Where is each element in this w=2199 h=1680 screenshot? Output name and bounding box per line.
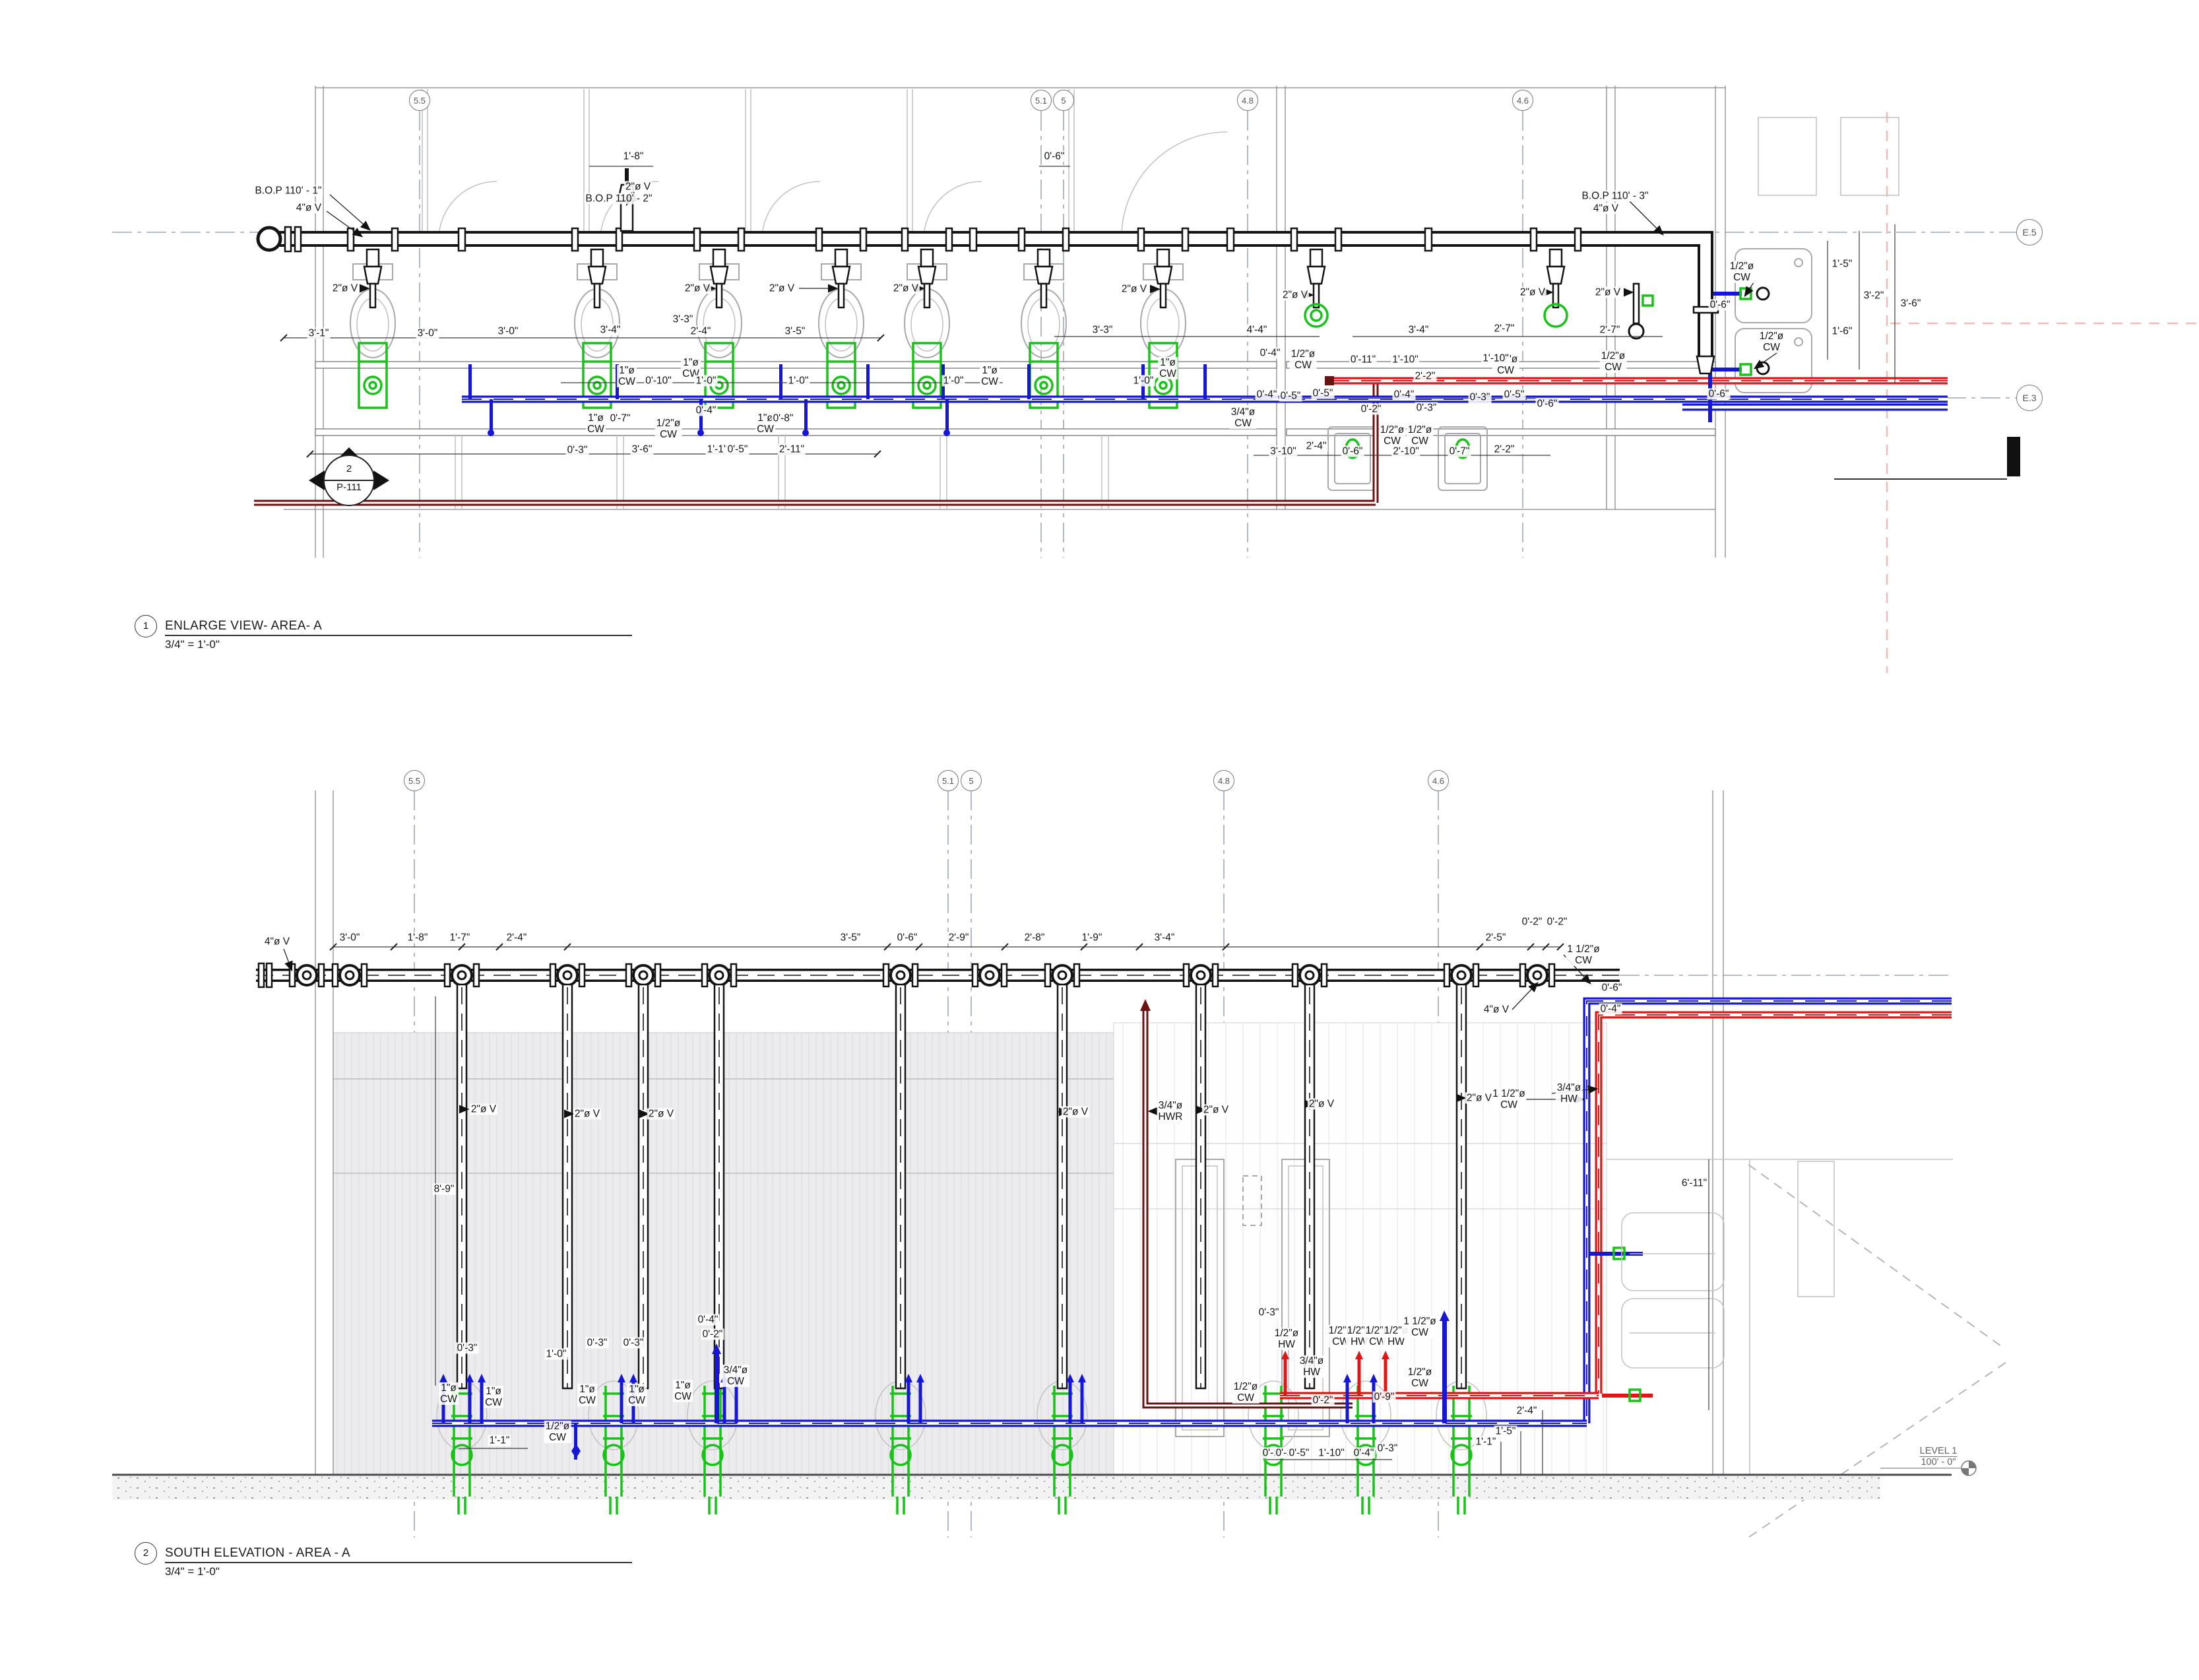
annotation-label: 1'-0" [942, 375, 965, 386]
annotation-label: 1 1/2"ø CW [1566, 944, 1601, 966]
annotation-label: 3'-2" [1863, 290, 1886, 301]
view-title-2: 2 SOUTH ELEVATION - AREA - A 3/4" = 1'-0… [165, 1546, 632, 1578]
view-number-2: 2 [135, 1542, 157, 1565]
annotation-label: 1 1/2"ø CW [1402, 1316, 1437, 1338]
grid-bubble: 4.8 [1237, 90, 1258, 111]
annotation-label: 0'-6" [1709, 299, 1732, 310]
annotation-label: 0'-6" [1043, 150, 1066, 162]
annotation-label: 2"ø V [573, 1108, 601, 1119]
annotation-label: 2"ø V [1281, 289, 1309, 300]
annotation-label: 0'-5" [1312, 387, 1335, 399]
grid-bubble: 5.5 [404, 770, 425, 791]
annotation-label: 0'-3" [1258, 1307, 1281, 1318]
annotation-label: 1'-1" [488, 1435, 511, 1446]
annotation-label: 0'-6" [1341, 445, 1364, 457]
annotation-label: 0'-5" [726, 443, 749, 455]
annotation-label: 1'-10" [1481, 352, 1510, 364]
annotation-label: 2"ø V [892, 282, 920, 294]
annotation-label: 3/4"ø HWR [1157, 1100, 1184, 1122]
annotation-label: 0'-5" [1288, 1447, 1311, 1458]
annotation-label: 2"ø V [684, 282, 711, 294]
annotation-label: 2"ø V [1519, 286, 1546, 298]
annotation-label: 1/2"ø CW [1407, 1367, 1434, 1389]
grid-bubble: 4.6 [1428, 770, 1449, 791]
annotation-label: 8'-9" [433, 1183, 456, 1194]
annotation-label: 1'-1" [1475, 1436, 1498, 1447]
annotation-label: 0'-4" [697, 1314, 720, 1325]
grid-bubble: 4.6 [1512, 90, 1533, 111]
annotation-label: 2'-5" [1484, 932, 1508, 943]
annotation-label: 1'-8" [622, 150, 645, 162]
grid-bubble: 4.8 [1213, 770, 1234, 791]
annotation-label: 1/2"ø CW [1729, 261, 1756, 283]
grid-bubble: E.3 [2016, 385, 2043, 411]
annotation-label: 0'-5" [1503, 389, 1526, 400]
section-tag: 2 P-111 [324, 455, 374, 505]
annotation-label: 2'-11" [778, 443, 806, 455]
annotation-label: 4"ø V [1482, 1004, 1510, 1015]
annotation-label: 1'-0" [1132, 375, 1155, 386]
annotation-label: 0'-3" [586, 1337, 609, 1348]
annotation-label: 0'-4" [695, 404, 718, 416]
annotation-label: 2"ø V [1062, 1106, 1089, 1117]
view-scale-1: 3/4" = 1'-0" [165, 638, 632, 651]
annotation-label: 3/4"ø HW [1556, 1082, 1583, 1105]
annotation-label: B.O.P 110' - 1" [254, 185, 323, 196]
annotation-label: 2"ø V [1594, 286, 1622, 298]
annotation-label: 3/4"ø CW [1230, 406, 1257, 429]
annotation-label: 4"ø V [263, 936, 291, 947]
annotation-label: 3'-5" [839, 932, 862, 943]
annotation-label: 2'-4" [505, 932, 528, 943]
level-datum-icon [1961, 1461, 1976, 1475]
annotation-label: 1/2"ø CW [1290, 348, 1317, 371]
section-sheet: P-111 [324, 482, 374, 493]
annotation-label: 1/2"ø CW [1407, 424, 1434, 447]
annotation-label: 0'-3" [622, 1337, 645, 1348]
annotation-label: 1/2"ø CW [1232, 1381, 1259, 1404]
annotation-label: 0'-2" [701, 1328, 724, 1340]
annotation-label: 1"ø CW [617, 365, 637, 387]
level-tag: LEVEL 1 100' - 0" [1920, 1446, 1958, 1468]
annotation-label: 1'-10" [1317, 1447, 1345, 1458]
annotation-label: 0'-8" [772, 412, 795, 424]
view-title-1: 1 ENLARGE VIEW- AREA- A 3/4" = 1'-0" [165, 619, 632, 651]
annotation-label: 2'-2" [1493, 443, 1516, 455]
annotation-label: 0'-9" [1373, 1391, 1396, 1402]
annotation-label: 3'-0" [416, 327, 439, 339]
annotation-label: 2'-10" [1391, 445, 1420, 457]
annotation-label: 0'-6" [1536, 398, 1559, 409]
annotation-label: 3'-3" [1091, 324, 1114, 335]
annotation-label: 1'-8" [406, 932, 430, 943]
annotation-label: 0'-3" [566, 444, 589, 455]
annotation-label: 2"ø V [647, 1108, 675, 1119]
annotation-label: 1'-5" [1494, 1425, 1517, 1437]
annotation-label: 3'-5" [784, 325, 807, 337]
annotation-label: 1'-0" [787, 375, 810, 386]
annotation-label: 1'-0" [545, 1348, 568, 1359]
drawing-linework [0, 0, 2199, 1680]
annotation-label: 0'-3" [1469, 391, 1492, 403]
annotation-label: 0'-7" [609, 412, 632, 424]
annotation-label: 0'-3" [1415, 402, 1438, 413]
annotation-label: 2'-7" [1493, 323, 1516, 334]
annotation-label: 2"ø V [1202, 1104, 1230, 1115]
annotation-label: 1"ø CW [586, 412, 606, 435]
annotation-label: 2'-8" [1023, 932, 1046, 943]
annotation-label: 1'-0" [695, 375, 718, 386]
annotation-label: 3'-0" [497, 325, 520, 337]
grid-bubble: 5.5 [409, 90, 430, 111]
annotation-label: 0'-4" [1353, 1447, 1376, 1458]
annotation-label: 0'-11" [1349, 354, 1377, 365]
annotation-label: 0'-2" [1360, 403, 1383, 414]
annotation-label: 0'-6" [1601, 982, 1624, 993]
annotation-label: 2'-2" [1414, 370, 1437, 381]
annotation-label: 0'-4" [1256, 389, 1279, 400]
annotation-label: 1/2"ø CW [655, 418, 682, 440]
elevation-view [112, 791, 2006, 1537]
view-title-text-2: SOUTH ELEVATION - AREA - A [165, 1546, 632, 1561]
title-underline-1 [165, 635, 632, 636]
annotation-label: 0'-2" [1312, 1394, 1335, 1405]
annotation-label: 6'-11" [1680, 1177, 1708, 1188]
annotation-label: 0'-4" [1393, 389, 1416, 400]
annotation-label: 3/4"ø CW [722, 1365, 749, 1387]
annotation-label: 2"ø V [1120, 283, 1148, 294]
annotation-label: 1 1/2"ø CW [1491, 1088, 1526, 1111]
annotation-label: 1"ø CW [980, 365, 1000, 387]
annotation-label: 4'-4" [1246, 324, 1269, 335]
annotation-label: 2"ø V [1308, 1098, 1335, 1109]
annotation-label: 3'-3" [672, 313, 695, 325]
view-title-text-1: ENLARGE VIEW- AREA- A [165, 619, 632, 633]
annotation-label: 1/2"ø HW [1273, 1328, 1300, 1350]
annotation-label: 4"ø V [1592, 203, 1620, 214]
annotation-label: 2"ø V [624, 181, 652, 192]
annotation-label: 2'-4" [689, 325, 713, 337]
view-scale-2: 3/4" = 1'-0" [165, 1565, 632, 1578]
annotation-label: 0'-6" [1707, 388, 1731, 399]
annotation-label: 2"ø V [768, 282, 796, 294]
annotation-label: B.O.P 110' - 3" [1581, 190, 1650, 201]
annotation-label: 1"ø CW [627, 1384, 647, 1406]
annotation-label: 0'-7" [1448, 445, 1471, 457]
annotation-label: 2"ø V [331, 282, 359, 294]
annotation-label: 0'-4" [1259, 347, 1282, 358]
annotation-label: 0'-2" [1546, 916, 1569, 927]
annotation-label: 0'-5" [1279, 390, 1302, 401]
annotation-label: 0'-10" [644, 375, 672, 386]
annotation-label: 1/2"ø CW [1600, 350, 1627, 373]
annotation-label: 3'-4" [1153, 932, 1176, 943]
annotation-label: 1'-5" [1831, 258, 1854, 269]
annotation-label: 1"ø CW [1158, 357, 1178, 379]
annotation-label: 3/4"ø HW [1298, 1355, 1325, 1378]
annotation-label: 1'-9" [1081, 932, 1104, 943]
annotation-label: 0'-2" [1521, 916, 1544, 927]
annotation-label: 1/2"ø CW [544, 1421, 571, 1443]
annotation-label: 4"ø V [295, 202, 323, 213]
view-number-1: 1 [135, 615, 157, 637]
annotation-label: 2"ø V [1465, 1092, 1493, 1103]
annotation-label: 1/2"ø CW [1758, 331, 1785, 353]
annotation-label: 3'-0" [338, 932, 362, 943]
annotation-label: 0'-3" [1376, 1442, 1399, 1454]
annotation-label: 1/2"ø CW [1379, 424, 1406, 447]
annotation-label: 3'-4" [599, 324, 622, 335]
grid-bubble: 5.1 [938, 770, 959, 791]
annotation-label: 1"ø CW [439, 1382, 459, 1405]
annotation-label: B.O.P 110' - 2" [585, 193, 654, 204]
annotation-label: 3'-6" [1899, 298, 1923, 309]
annotation-label: 1'-1" [706, 443, 729, 455]
annotation-label: 0'-3" [456, 1342, 479, 1353]
annotation-label: 0'-4" [1599, 1003, 1622, 1014]
level-name: LEVEL 1 [1920, 1446, 1958, 1456]
annotation-label: 3'-10" [1269, 445, 1297, 457]
annotation-label: 3'-1" [307, 327, 331, 339]
annotation-label: 1"ø CW [577, 1384, 597, 1406]
annotation-label: 1"ø CW [673, 1380, 693, 1402]
annotation-label: 3'-6" [631, 443, 654, 455]
grid-bubble: 5 [961, 770, 982, 791]
annotation-label: 3'-4" [1407, 324, 1430, 335]
annotation-label: 1'-7" [449, 932, 472, 943]
grid-bubble: 5.1 [1031, 90, 1052, 111]
annotation-label: 2'-7" [1599, 324, 1622, 335]
sheet-canvas: { "drawing": { "type": "plumbing-shop-dr… [0, 0, 2199, 1680]
level-elevation: 100' - 0" [1920, 1456, 1958, 1468]
title-underline-2 [165, 1562, 632, 1563]
annotation-label: 1"ø CW [484, 1386, 503, 1408]
annotation-label: 0'-6" [896, 932, 919, 943]
annotation-label: 2'-4" [1515, 1405, 1539, 1416]
annotation-label: 1'-6" [1831, 325, 1854, 337]
grid-bubble: 5 [1053, 90, 1074, 111]
grid-bubble: E.5 [2016, 219, 2043, 245]
annotation-label: 2'-4" [1305, 440, 1328, 451]
annotation-label: 1'-10" [1391, 354, 1419, 365]
annotation-label: 2"ø V [470, 1103, 497, 1115]
section-number: 2 [324, 463, 374, 474]
annotation-label: 2'-9" [947, 932, 971, 943]
